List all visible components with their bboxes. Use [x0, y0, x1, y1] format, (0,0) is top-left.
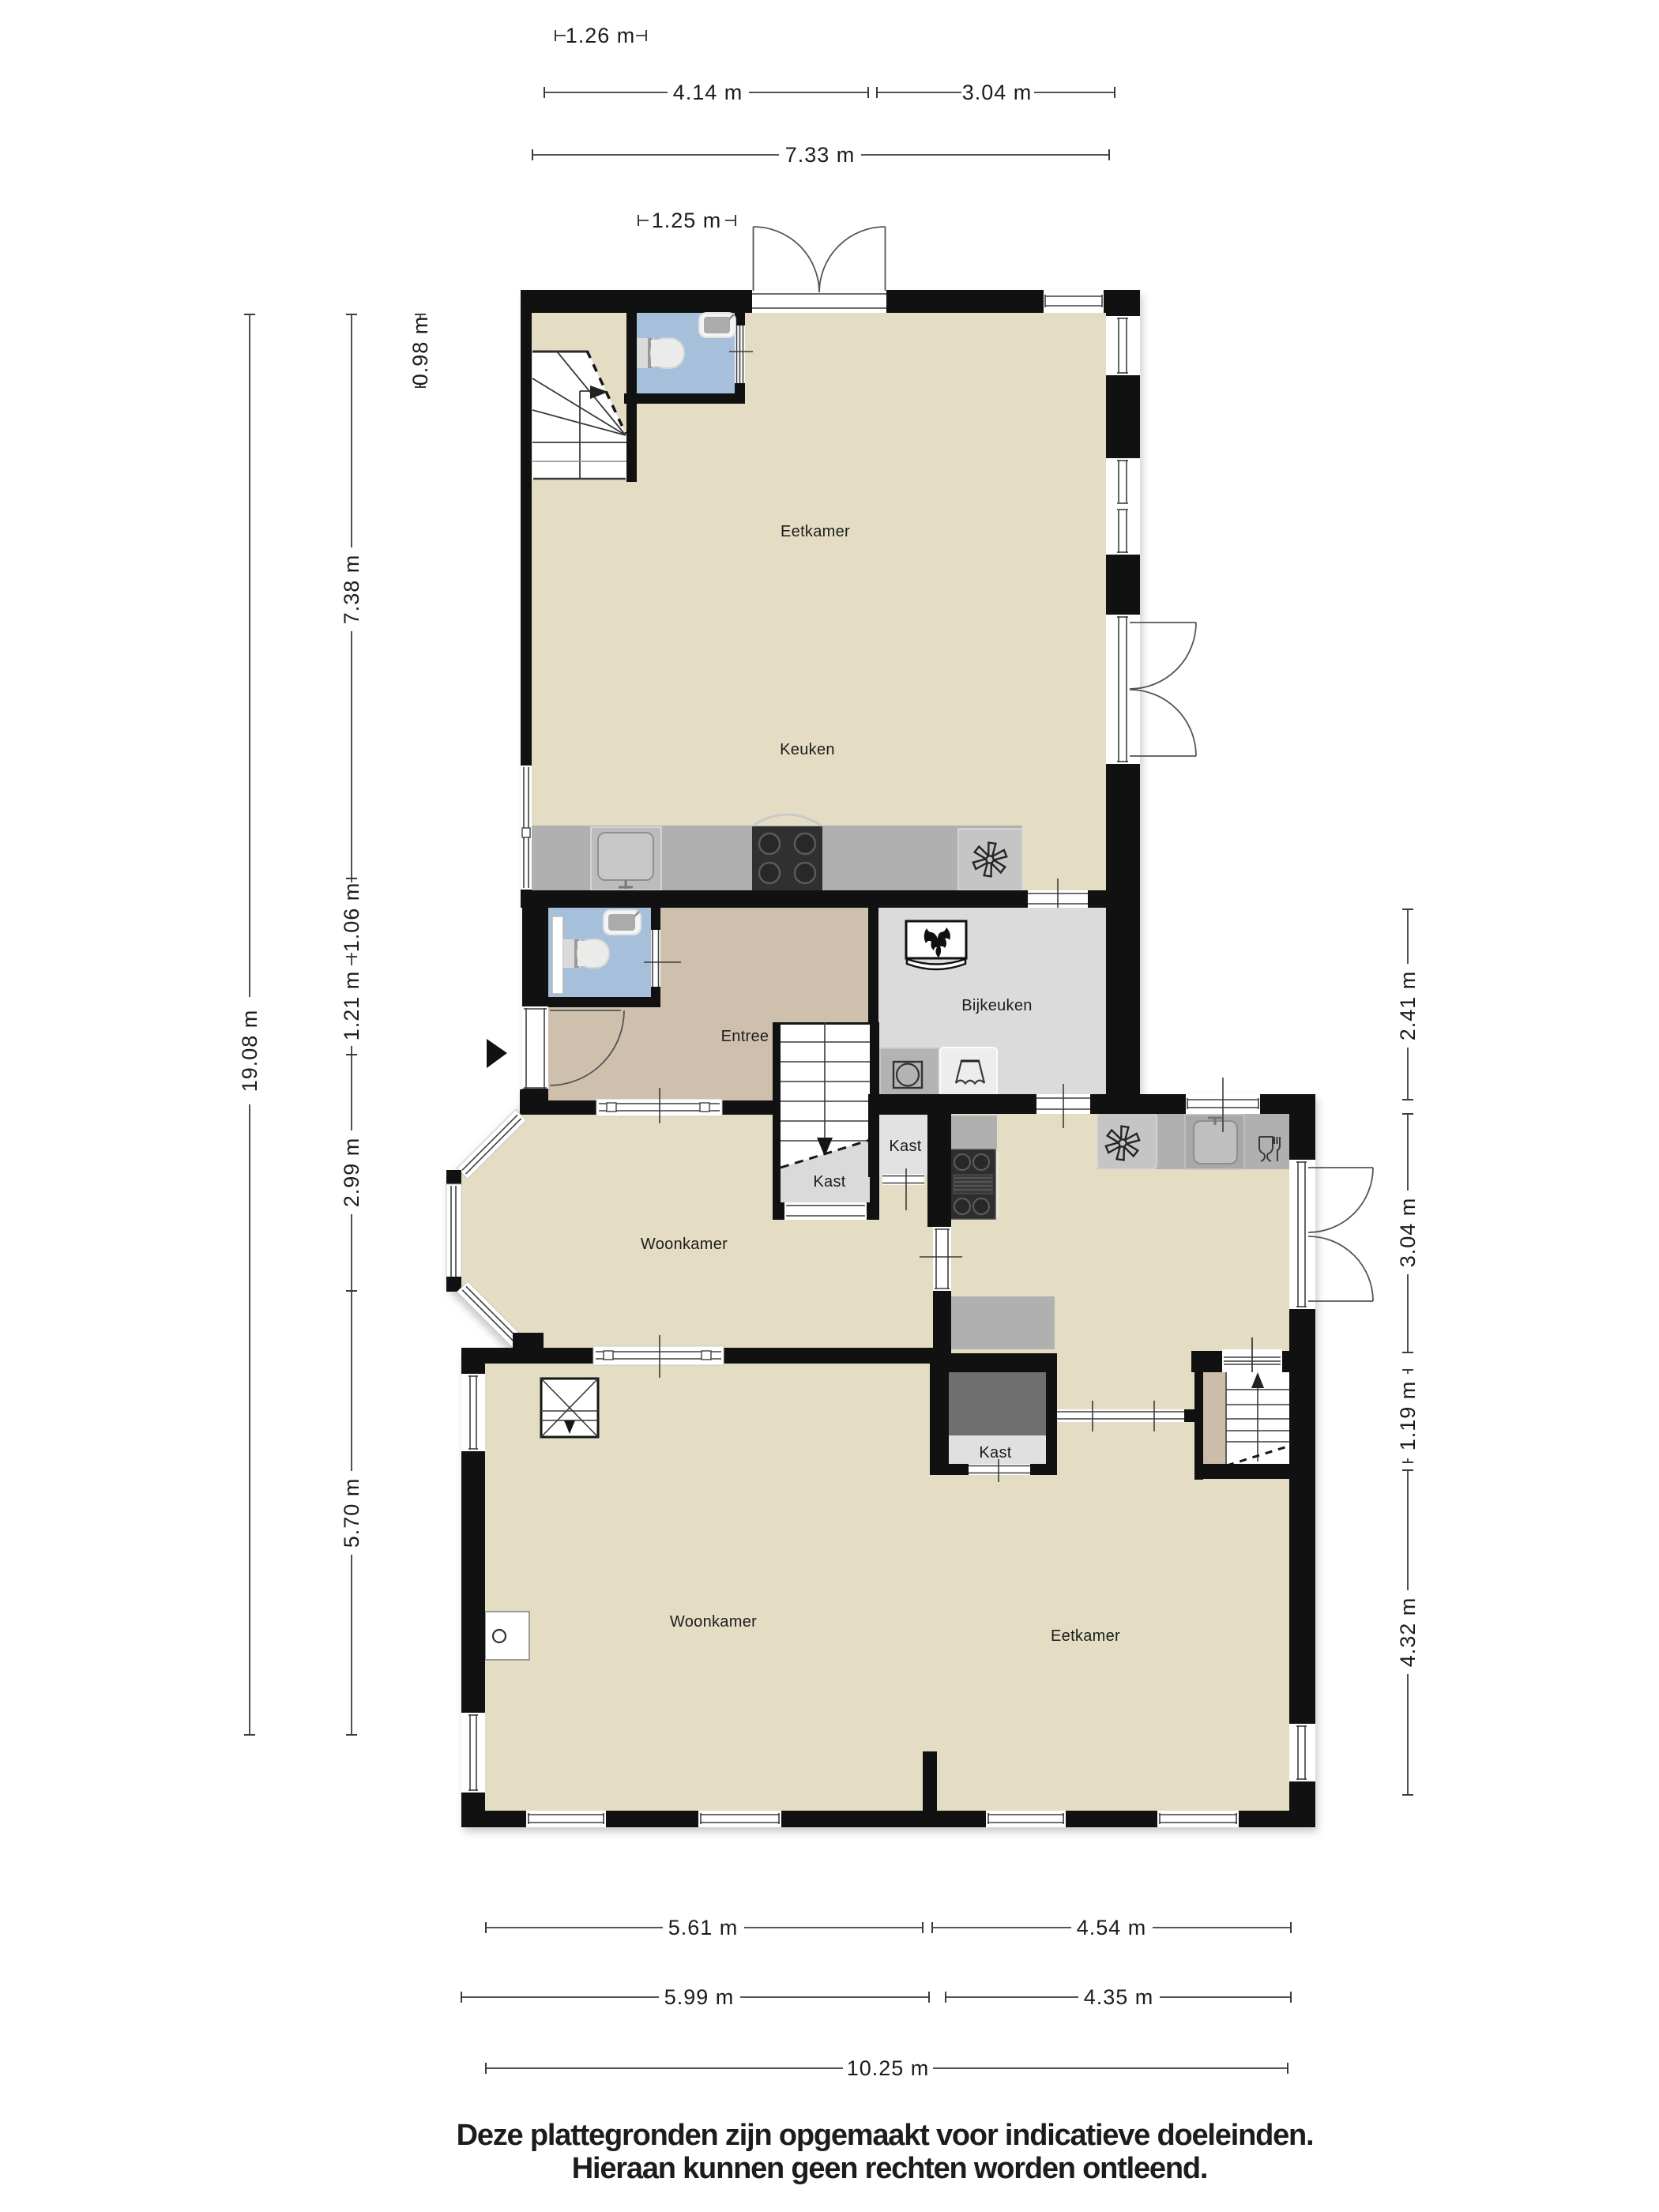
svg-text:2.99 m: 2.99 m	[340, 1138, 363, 1208]
svg-text:5.99 m: 5.99 m	[664, 1985, 735, 2009]
svg-text:7.33 m: 7.33 m	[785, 143, 856, 167]
svg-text:19.08 m: 19.08 m	[238, 1010, 261, 1093]
svg-text:0.98 m: 0.98 m	[408, 316, 432, 386]
svg-text:Kast: Kast	[979, 1444, 1011, 1461]
svg-text:4.14 m: 4.14 m	[673, 81, 743, 104]
svg-text:10.25 m: 10.25 m	[847, 2056, 930, 2080]
svg-text:2.41 m: 2.41 m	[1396, 971, 1420, 1041]
svg-text:1.26 m: 1.26 m	[566, 24, 636, 47]
svg-text:Eetkamer: Eetkamer	[1051, 1627, 1120, 1645]
svg-text:Woonkamer: Woonkamer	[670, 1613, 757, 1631]
svg-text:1.19 m: 1.19 m	[1396, 1381, 1420, 1451]
svg-text:7.38 m: 7.38 m	[340, 555, 363, 625]
svg-text:Deze plattegronden zijn opgema: Deze plattegronden zijn opgemaakt voor i…	[457, 2119, 1314, 2152]
svg-text:3.04 m: 3.04 m	[962, 81, 1033, 104]
svg-text:1.06 m: 1.06 m	[340, 882, 363, 953]
svg-text:Bijkeuken: Bijkeuken	[961, 997, 1032, 1014]
svg-text:4.35 m: 4.35 m	[1084, 1985, 1154, 2009]
svg-text:4.32 m: 4.32 m	[1396, 1597, 1420, 1668]
svg-text:1.25 m: 1.25 m	[652, 209, 722, 232]
svg-text:Kast: Kast	[813, 1173, 845, 1191]
svg-text:4.54 m: 4.54 m	[1077, 1916, 1147, 1939]
svg-text:Keuken: Keuken	[780, 741, 835, 758]
svg-text:Woonkamer: Woonkamer	[641, 1236, 728, 1253]
svg-text:Hieraan kunnen geen rechten wo: Hieraan kunnen geen rechten worden ontle…	[572, 2152, 1207, 2185]
svg-text:Eetkamer: Eetkamer	[781, 523, 850, 540]
svg-text:Kast: Kast	[889, 1138, 921, 1155]
svg-text:5.70 m: 5.70 m	[340, 1478, 363, 1548]
svg-text:Entree: Entree	[721, 1028, 769, 1045]
svg-text:1.21 m: 1.21 m	[340, 971, 363, 1041]
svg-text:3.04 m: 3.04 m	[1396, 1198, 1420, 1268]
svg-text:5.61 m: 5.61 m	[668, 1916, 739, 1939]
